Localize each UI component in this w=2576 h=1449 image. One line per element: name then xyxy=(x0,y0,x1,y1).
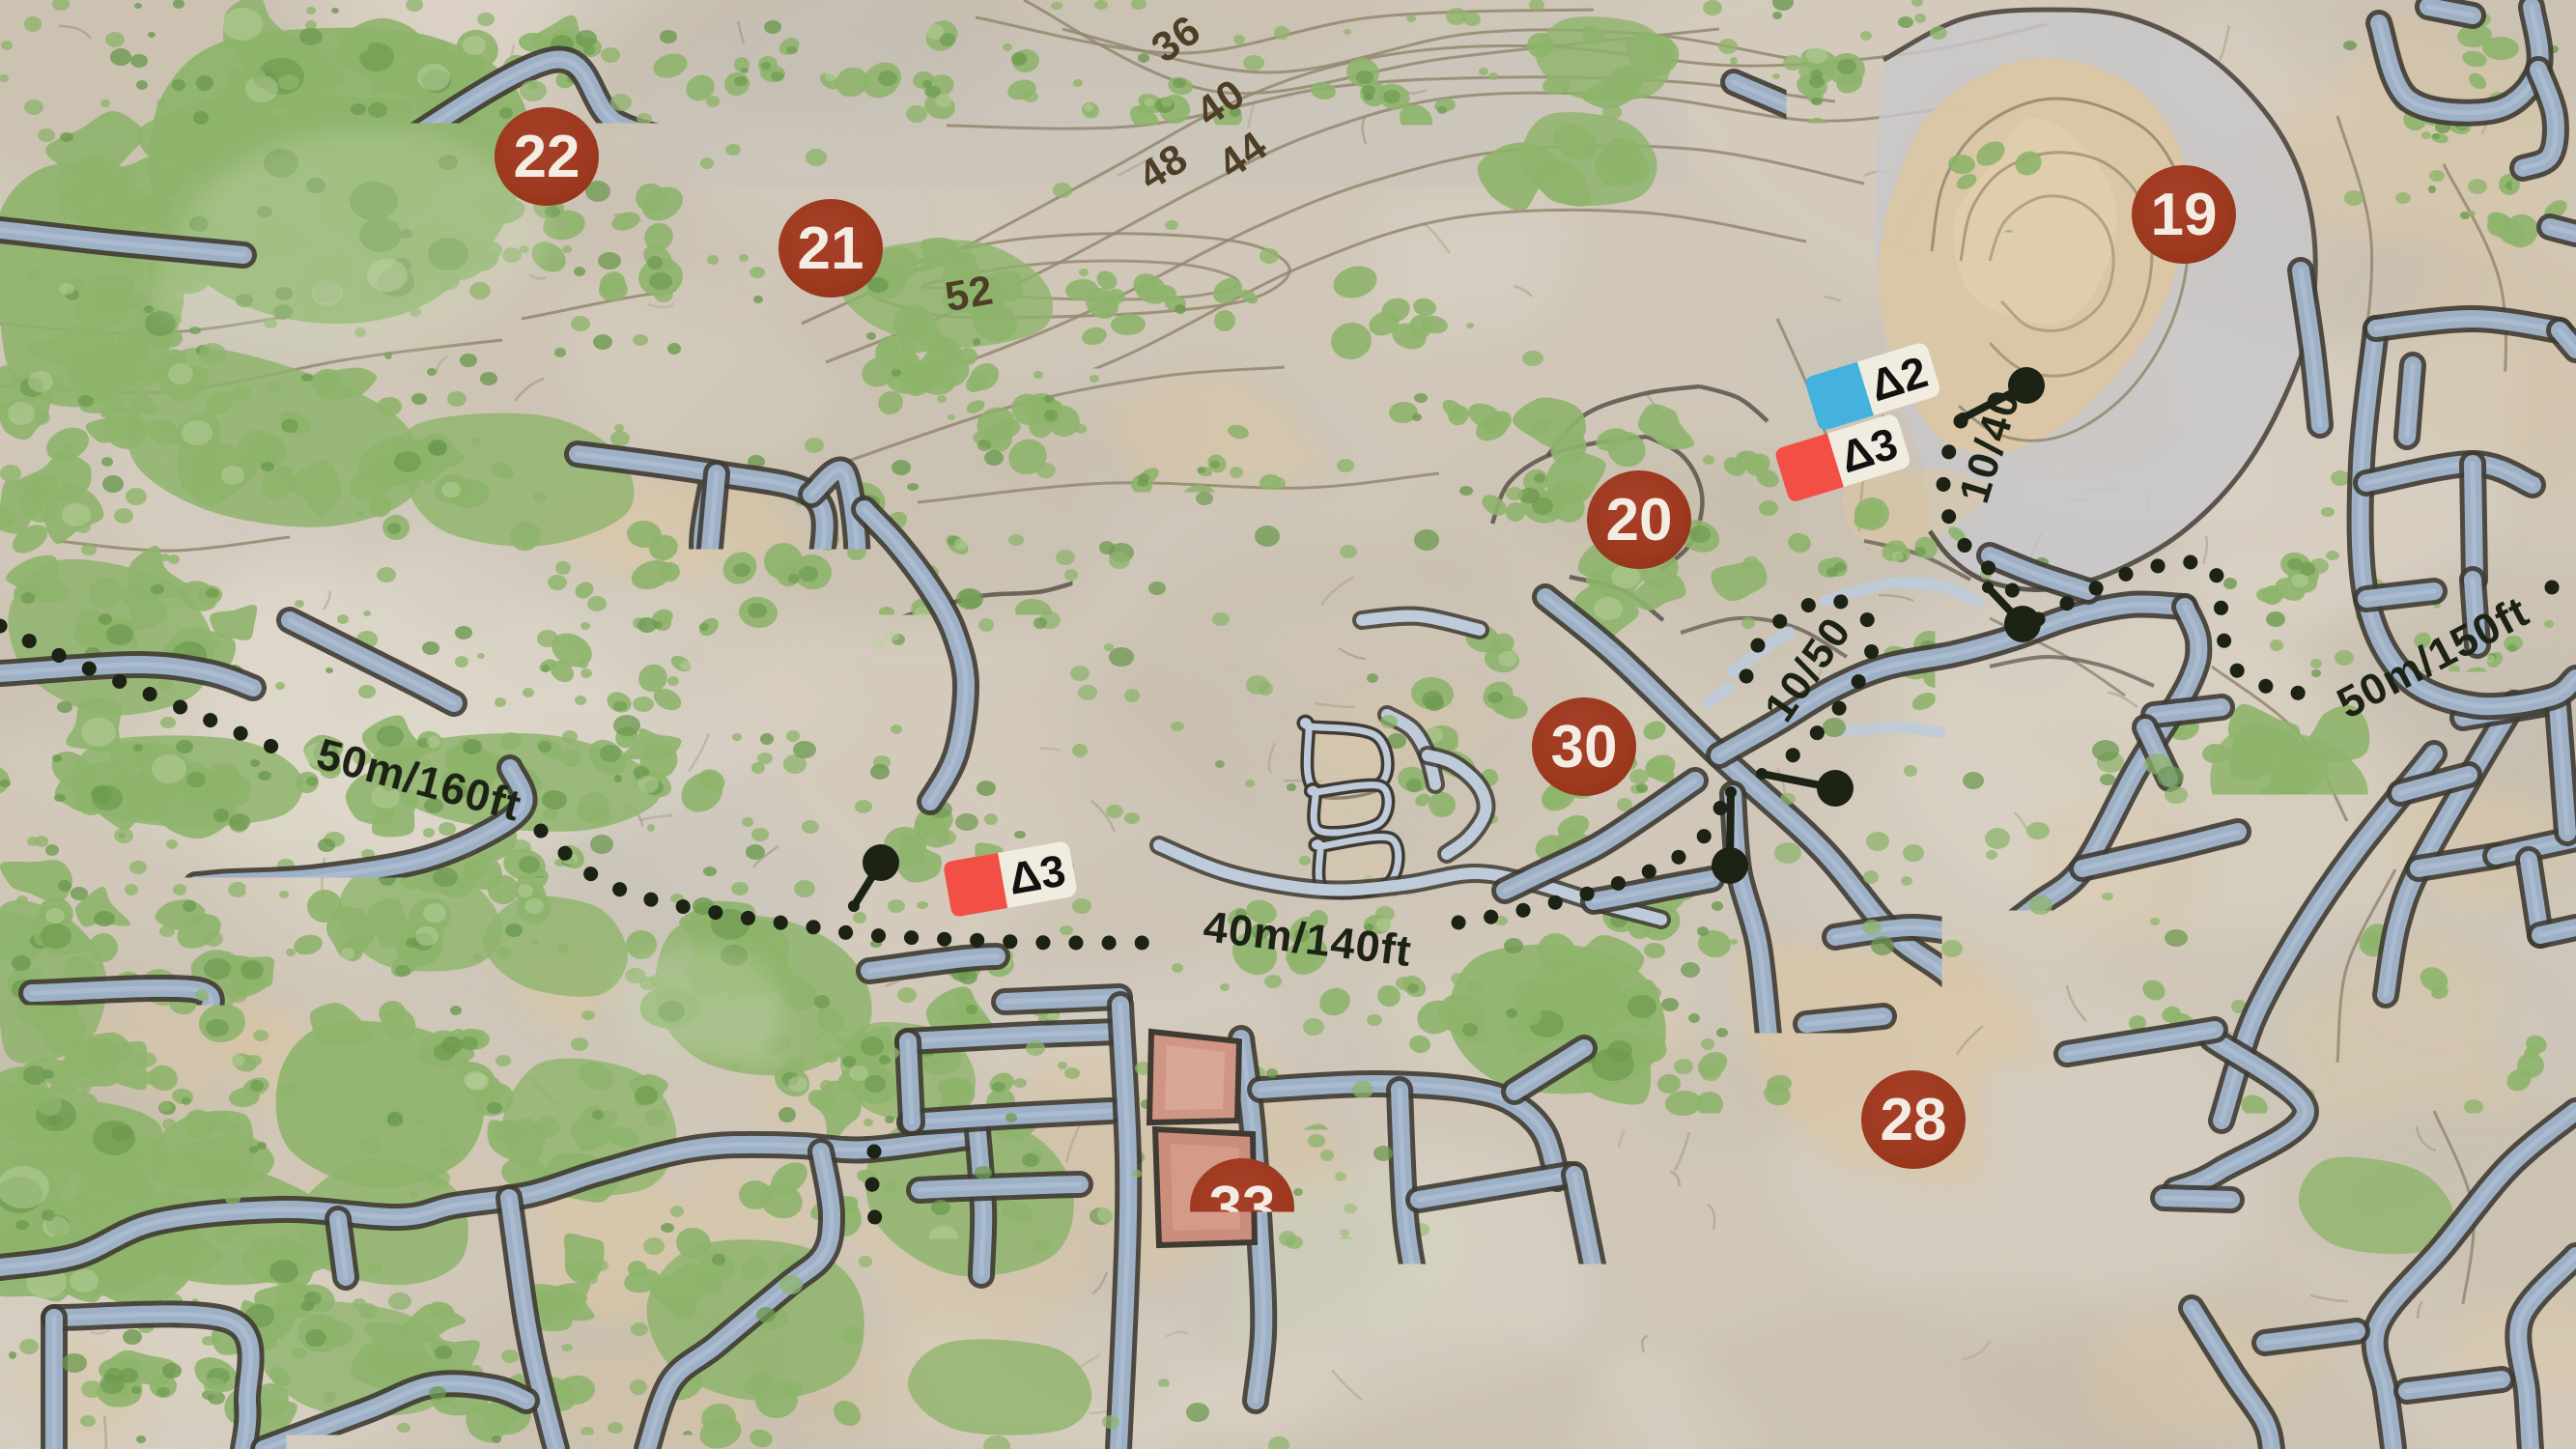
svg-text:Δ3: Δ3 xyxy=(1005,844,1069,903)
svg-text:22: 22 xyxy=(514,124,580,190)
svg-text:33: 33 xyxy=(1209,1175,1276,1241)
svg-text:21: 21 xyxy=(798,215,864,282)
svg-text:19: 19 xyxy=(2151,182,2218,248)
svg-text:28: 28 xyxy=(1881,1087,1947,1153)
svg-text:52: 52 xyxy=(942,267,997,321)
svg-text:30: 30 xyxy=(1551,714,1618,781)
svg-text:20: 20 xyxy=(1606,487,1673,554)
